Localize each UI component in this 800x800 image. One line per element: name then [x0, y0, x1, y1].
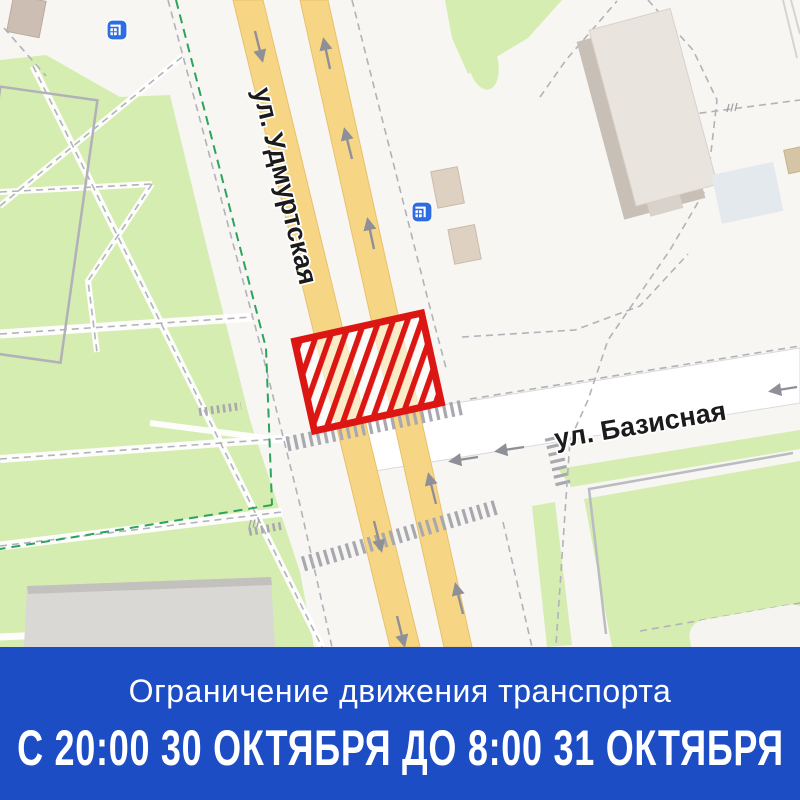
- transport-stop-icon: [412, 202, 432, 222]
- map-canvas: ул. Удмуртская ул. Базисная: [0, 0, 800, 647]
- info-banner: Ограничение движения транспорта С 20:00 …: [0, 647, 800, 800]
- transport-stop-icon: [107, 20, 127, 40]
- banner-title: Ограничение движения транспорта: [129, 673, 672, 710]
- building: [7, 0, 46, 38]
- road-closure-announcement: ул. Удмуртская ул. Базисная Ограничение …: [0, 0, 800, 800]
- banner-schedule: С 20:00 30 ОКТЯБРЯ ДО 8:00 31 ОКТЯБРЯ: [17, 719, 784, 777]
